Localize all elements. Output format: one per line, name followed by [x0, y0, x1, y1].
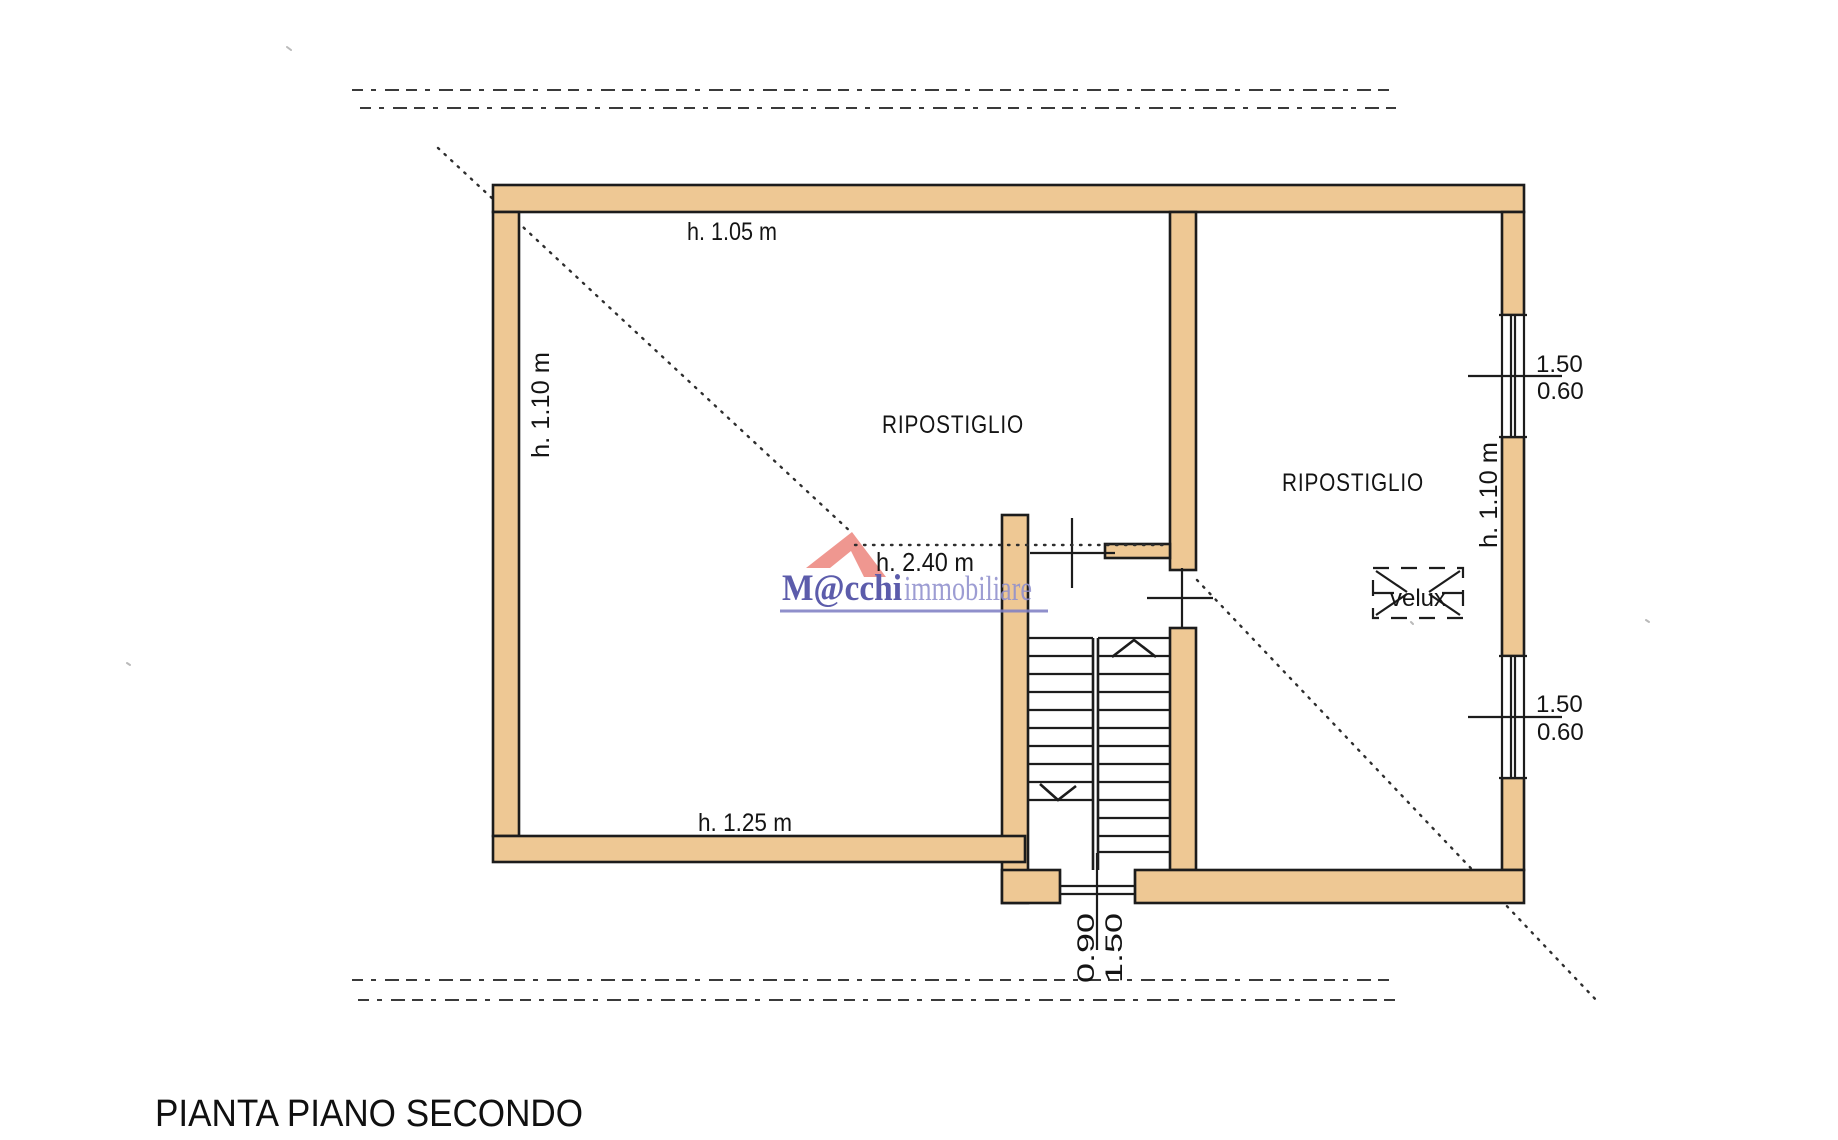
- door-symbol-landing: [1030, 518, 1115, 588]
- bottom-door-height-label: 1.50: [1101, 913, 1128, 983]
- height-label-top: h. 1.05 m: [687, 218, 777, 246]
- window-lower-width-label: 1.50: [1536, 691, 1583, 718]
- window-upper-sill-label: 0.60: [1537, 378, 1584, 405]
- height-label-right: h. 1.10 m: [1475, 442, 1503, 548]
- velux-skylight: velux: [1373, 568, 1463, 618]
- velux-label: velux: [1390, 585, 1446, 612]
- stair-arrow-up: [1112, 640, 1156, 657]
- stair-treads-right-flight: [1098, 638, 1170, 852]
- plan-title: PIANTA PIANO SECONDO: [155, 1093, 583, 1135]
- floorplan-drawing: 0.90 1.50 1.50 0.60 1.50 0.60 M@cchi imm…: [0, 0, 1838, 1140]
- roof-slope-line-right: [1197, 580, 1598, 1002]
- wall-left: [493, 212, 519, 836]
- wall-bottom-left-room: [493, 836, 1025, 862]
- room-label-left: RIPOSTIGLIO: [882, 411, 1024, 439]
- wall-right-lower: [1502, 778, 1524, 870]
- height-label-center: h. 2.40 m: [876, 547, 974, 577]
- bottom-door-width-label: 0.90: [1073, 913, 1100, 983]
- bottom-door: 0.90 1.50: [1060, 853, 1135, 983]
- stair-arrow-down: [1040, 784, 1076, 800]
- window-upper-width-label: 1.50: [1536, 351, 1583, 378]
- stair-treads-left-flight: [1028, 638, 1093, 800]
- stair-flight-divider: [1093, 638, 1098, 870]
- wall-right-upper: [1502, 212, 1524, 315]
- window-lower-sill-label: 0.60: [1537, 719, 1584, 746]
- wall-bottom-band-left: [1002, 870, 1060, 903]
- door-symbol-right-room: [1147, 568, 1213, 628]
- wall-partition-upper: [1170, 212, 1196, 570]
- height-label-left: h. 1.10 m: [527, 352, 555, 458]
- wall-top: [493, 185, 1524, 212]
- floorplan-page: 0.90 1.50 1.50 0.60 1.50 0.60 M@cchi imm…: [0, 0, 1838, 1140]
- staircase: [1028, 638, 1170, 870]
- room-label-right: RIPOSTIGLIO: [1282, 469, 1424, 497]
- wall-right-middle: [1502, 437, 1524, 656]
- wall-stub: [1105, 544, 1170, 558]
- height-label-bottom: h. 1.25 m: [698, 809, 792, 837]
- wall-bottom-band-right: [1135, 870, 1524, 903]
- wall-partition-lower: [1170, 628, 1196, 870]
